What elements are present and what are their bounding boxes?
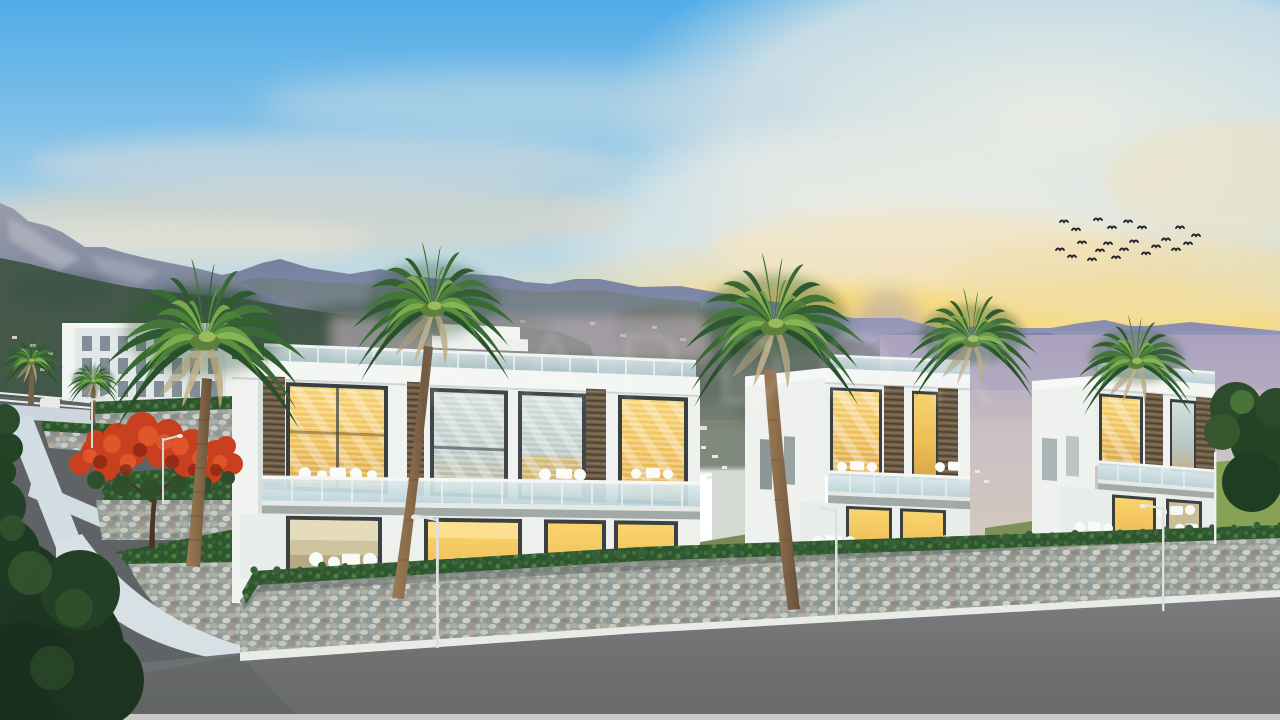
svg-text:KAPDOR: KAPDOR <box>420 312 1027 428</box>
